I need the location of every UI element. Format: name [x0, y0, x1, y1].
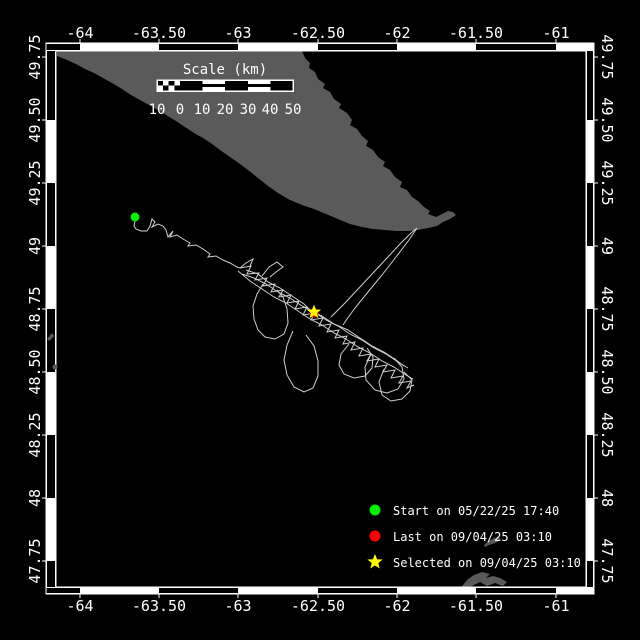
lon-label-bottom: -61.50: [449, 597, 503, 615]
frame-segment: [47, 183, 55, 246]
legend-selected-label: Selected on 09/04/25 03:10: [393, 556, 581, 570]
start-position-marker[interactable]: [131, 213, 140, 222]
lon-label-top: -61.50: [449, 24, 503, 42]
lat-label-right: 48.50: [598, 349, 616, 394]
lon-label-bottom: -64: [66, 597, 93, 615]
scale-segment-black: [270, 80, 293, 91]
track-path: [242, 274, 408, 368]
tracking-map-window: -64-64-63.50-63.50-63-63-62.50-62.50-62-…: [0, 0, 640, 640]
scale-number: 40: [262, 102, 279, 118]
lat-label-left: 49.75: [26, 34, 44, 79]
scale-number: 50: [285, 102, 302, 118]
lat-label-left: 48.50: [26, 349, 44, 394]
track-path: [379, 369, 412, 401]
scale-number: 30: [240, 102, 257, 118]
frame-segment: [46, 588, 80, 593]
scale-checker-cell: [163, 86, 169, 92]
scale-segment-black: [225, 80, 248, 91]
scale-number: 20: [217, 102, 234, 118]
lon-label-top: -64: [66, 24, 93, 42]
frame-segment: [476, 44, 556, 50]
map-canvas[interactable]: -64-64-63.50-63.50-63-63-62.50-62.50-62-…: [0, 0, 640, 640]
lon-label-bottom: -62.50: [291, 597, 345, 615]
lon-label-top: -62: [383, 24, 410, 42]
frame-segment: [47, 561, 55, 587]
legend-circle-marker: [370, 505, 381, 516]
frame-segment: [47, 435, 55, 498]
lat-label-right: 49.25: [598, 160, 616, 205]
lon-label-top: -63: [224, 24, 251, 42]
lon-label-bottom: -63: [224, 597, 251, 615]
scale-number: 0: [176, 102, 184, 118]
scale-checker-cell: [169, 80, 175, 86]
landmass: [460, 572, 507, 588]
frame-segment: [587, 51, 593, 120]
frame-segment: [47, 309, 55, 372]
lon-label-bottom: -63.50: [132, 597, 186, 615]
lat-label-right: 49.50: [598, 97, 616, 142]
frame-segment: [159, 44, 238, 50]
frame-segment: [318, 588, 397, 593]
lat-label-right: 48: [598, 489, 616, 507]
legend: Start on 05/22/25 17:40 Last on 09/04/25…: [367, 504, 580, 570]
frame-segment: [587, 561, 593, 587]
landmass: [57, 51, 456, 231]
lat-label-left: 48.25: [26, 412, 44, 457]
frame-segment: [476, 588, 556, 593]
lon-label-bottom: -62: [383, 597, 410, 615]
track-layer[interactable]: [134, 219, 417, 401]
lat-label-right: 49.75: [598, 34, 616, 79]
lat-label-left: 49: [26, 237, 44, 255]
lon-label-top: -61: [542, 24, 569, 42]
track-path: [331, 228, 417, 325]
legend-last-label: Last on 09/04/25 03:10: [393, 530, 552, 544]
legend-circle-marker: [370, 531, 381, 542]
frame-segment: [159, 588, 238, 593]
lon-label-top: -62.50: [291, 24, 345, 42]
lat-label-left: 47.75: [26, 538, 44, 583]
frame-segment: [587, 435, 593, 498]
scale-bar-graphic: [157, 80, 293, 91]
scale-segment-stripe: [203, 84, 226, 87]
lat-label-left: 49.25: [26, 160, 44, 205]
track-path: [284, 331, 318, 392]
lat-label-left: 49.50: [26, 97, 44, 142]
lon-label-top: -63.50: [132, 24, 186, 42]
lat-label-right: 47.75: [598, 538, 616, 583]
scale-number: 10: [194, 102, 211, 118]
scale-bar-title: Scale (km): [183, 62, 267, 78]
frame-segment: [46, 44, 80, 50]
frame-segment: [318, 44, 397, 50]
track-path: [134, 219, 240, 268]
lon-label-bottom: -61: [542, 597, 569, 615]
scale-segment-black: [180, 80, 203, 91]
scale-checker-cell: [157, 80, 163, 86]
scale-checker-cell: [174, 86, 180, 92]
track-path: [262, 262, 283, 277]
legend-start-label: Start on 05/22/25 17:40: [393, 504, 559, 518]
lat-label-left: 48.75: [26, 286, 44, 331]
track-path: [365, 354, 404, 393]
scale-segment-stripe: [248, 84, 271, 87]
lat-label-right: 49: [598, 237, 616, 255]
frame-segment: [47, 51, 55, 120]
islet-dot: [53, 365, 58, 370]
frame-segment: [587, 183, 593, 246]
lat-label-left: 48: [26, 489, 44, 507]
scale-number: 10: [149, 102, 166, 118]
lat-label-right: 48.25: [598, 412, 616, 457]
frame-segment: [587, 309, 593, 372]
lat-label-right: 48.75: [598, 286, 616, 331]
legend-star-marker: [367, 554, 382, 569]
